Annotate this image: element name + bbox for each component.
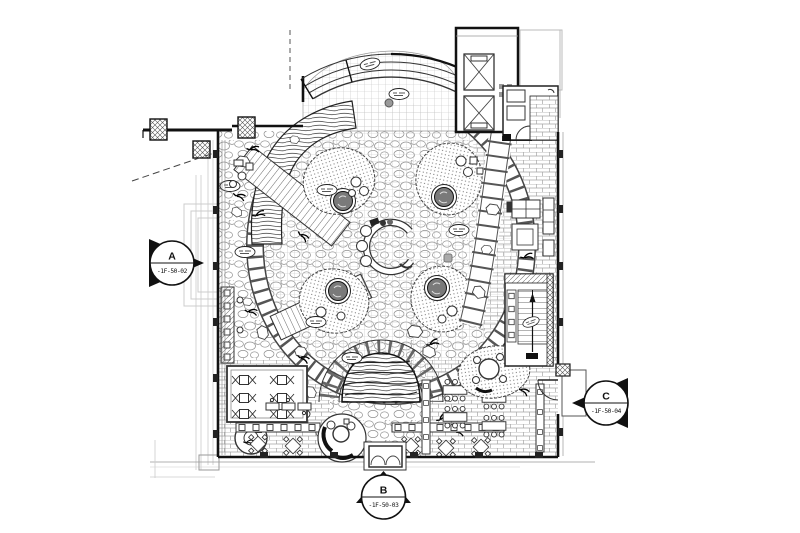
circular-bench xyxy=(318,414,366,462)
tree-icon xyxy=(326,279,351,304)
counter-equipment xyxy=(387,219,393,225)
column xyxy=(556,364,570,376)
section-code-b: -1F-50-03 xyxy=(369,502,400,509)
lounge-right xyxy=(507,198,554,256)
floor-drain-icon xyxy=(385,99,393,107)
keynote-tag xyxy=(342,353,362,364)
dining-room-southwest xyxy=(227,366,307,422)
section-letter-a: A xyxy=(168,251,176,263)
floor-plan-canvas: A -1F-50-02 B -1F-50-03 C -1F-50-04 xyxy=(0,0,800,533)
keynote-tag xyxy=(235,247,255,258)
keynote-tag xyxy=(317,185,337,196)
keynote-tag xyxy=(389,89,409,100)
south-vestibule xyxy=(364,442,406,470)
section-code-c: -1F-50-04 xyxy=(591,408,622,415)
keynote-tag xyxy=(306,317,326,328)
section-code-a: -1F-50-02 xyxy=(157,268,188,275)
diamond-table xyxy=(249,435,268,454)
rooms-northeast xyxy=(503,86,558,141)
column xyxy=(238,117,255,138)
diamond-table xyxy=(437,439,456,458)
floor-box xyxy=(444,254,452,262)
table-group xyxy=(482,415,506,437)
keynote-tag xyxy=(449,225,469,236)
section-letter-c: C xyxy=(602,391,610,403)
elevator-shaft-1 xyxy=(464,54,494,90)
counter-stool xyxy=(361,226,372,237)
floor-plan-drawing: A -1F-50-02 B -1F-50-03 C -1F-50-04 xyxy=(0,0,800,533)
table-group xyxy=(443,406,467,428)
counter-equipment xyxy=(380,220,386,226)
tree-icon xyxy=(425,276,450,301)
staircase xyxy=(505,274,553,366)
column xyxy=(150,119,167,140)
section-letter-b: B xyxy=(380,485,388,497)
counter-stool xyxy=(361,256,372,267)
elevator-shaft-2 xyxy=(464,96,494,130)
diamond-table xyxy=(284,437,303,456)
section-marker-b: B -1F-50-03 xyxy=(356,471,411,519)
counter-stool xyxy=(357,241,368,252)
tree-icon xyxy=(432,185,457,210)
